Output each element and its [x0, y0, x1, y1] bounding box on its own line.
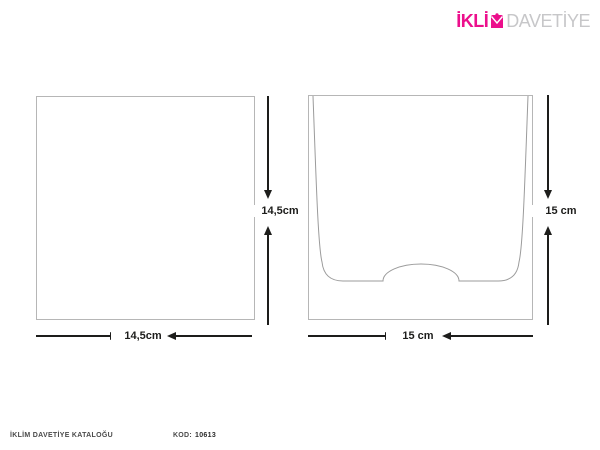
envelope-width-dim-line-right — [451, 335, 533, 337]
envelope-outline — [308, 95, 533, 320]
card-height-dim-line-bottom — [267, 235, 269, 325]
envelope-height-label: 15 cm — [529, 205, 593, 217]
card-height-dim-line-top — [267, 96, 269, 190]
card-height-arrow-down-icon — [264, 190, 272, 199]
brand-logo: İKLİ DAVETİYE — [456, 12, 590, 30]
envelope-height-dim-line-bottom — [547, 235, 549, 325]
catalog-title: İKLİM DAVETİYE KATALOĞU — [10, 432, 113, 439]
card-height-label: 14,5cm — [248, 205, 312, 217]
card-width-dim-line-left — [36, 335, 110, 337]
card-width-arrow-left-icon — [167, 332, 176, 340]
footer: İKLİM DAVETİYE KATALOĞU KOD: 10613 — [10, 432, 216, 439]
envelope-width-dim-line-left — [308, 335, 385, 337]
code-label: KOD: — [173, 432, 192, 439]
envelope-icon — [489, 13, 505, 29]
brand-prefix-text: İKLİ — [456, 12, 488, 30]
card-height-arrow-up-icon — [264, 226, 272, 235]
card-width-label: 14,5cm — [111, 330, 175, 342]
code-value: 10613 — [195, 432, 216, 439]
catalog-page: İKLİ DAVETİYE 14,5cm 14,5cm 15 cm 15 cm … — [0, 0, 600, 450]
card-outline — [36, 96, 255, 320]
envelope-height-arrow-down-icon — [544, 190, 552, 199]
envelope-height-dim-line-top — [547, 95, 549, 190]
card-width-dim-line-right — [176, 335, 252, 337]
brand-secondary-text: DAVETİYE — [506, 12, 590, 30]
envelope-width-label: 15 cm — [386, 330, 450, 342]
envelope-pocket-shape — [309, 96, 532, 319]
envelope-height-arrow-up-icon — [544, 226, 552, 235]
envelope-width-arrow-left-icon — [442, 332, 451, 340]
